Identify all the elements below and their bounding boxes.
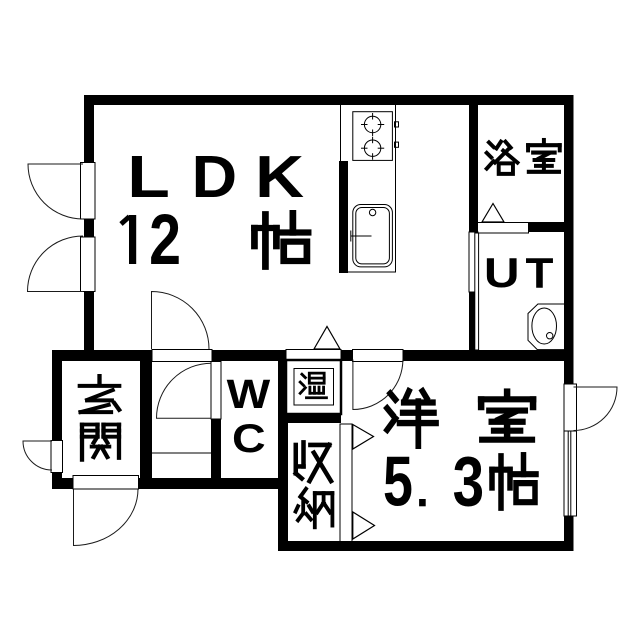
svg-text:W: W bbox=[227, 373, 271, 418]
svg-text:3: 3 bbox=[453, 442, 484, 521]
svg-text:D: D bbox=[192, 144, 237, 210]
svg-text:T: T bbox=[526, 250, 554, 297]
svg-text:2: 2 bbox=[149, 199, 181, 280]
svg-text:K: K bbox=[255, 143, 304, 210]
svg-text:C: C bbox=[232, 417, 266, 461]
svg-text:5: 5 bbox=[383, 443, 413, 522]
svg-text:U: U bbox=[484, 249, 520, 297]
